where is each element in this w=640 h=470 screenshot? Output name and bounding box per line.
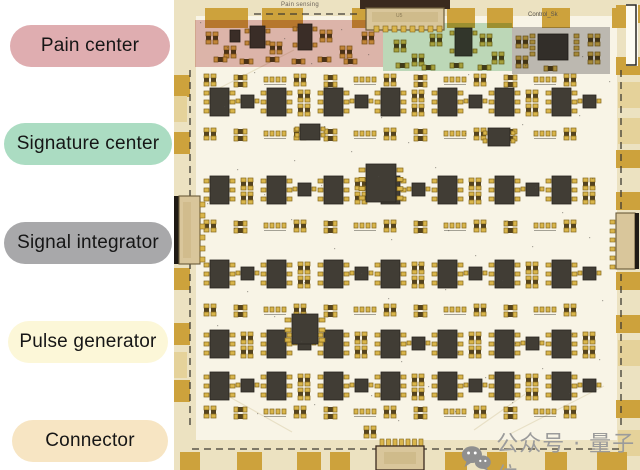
smd-chip xyxy=(552,372,571,400)
smd-chip xyxy=(241,379,254,392)
silkscreen-pain-sensing-label: Pain sensing xyxy=(281,2,319,8)
smd-chip xyxy=(292,314,318,344)
top-connector xyxy=(360,0,450,32)
smd-chip xyxy=(469,95,482,108)
edge-tab xyxy=(616,150,640,168)
smd-chip xyxy=(355,379,368,392)
edge-tab xyxy=(616,192,640,210)
smd-chip xyxy=(267,330,286,358)
smd-chip xyxy=(324,260,343,288)
smd-chip xyxy=(583,95,596,108)
smd-chip xyxy=(210,260,229,288)
legend-label: Pain center xyxy=(41,35,139,57)
legend-label: Signature center xyxy=(17,133,160,155)
smd-chip xyxy=(552,88,571,116)
smd-chip xyxy=(488,128,510,146)
edge-tab xyxy=(174,96,187,122)
smd-chip xyxy=(324,176,343,204)
legend-label: Pulse generator xyxy=(19,331,156,353)
smd-chip xyxy=(298,183,311,196)
silkscreen-control-label: Control_Sk xyxy=(528,12,558,18)
edge-tab xyxy=(174,268,190,290)
edge-tab xyxy=(174,132,190,154)
legend-label: Signal integrator xyxy=(17,232,159,254)
smd-chip xyxy=(495,176,514,204)
edge-tab xyxy=(616,315,640,333)
smd-chip xyxy=(583,267,596,280)
smd-chip xyxy=(438,176,457,204)
edge-tab xyxy=(180,452,200,470)
smd-chip xyxy=(241,267,254,280)
legend-pill-pulse-generator: Pulse generator xyxy=(8,321,168,363)
pcb-photo xyxy=(174,0,640,470)
smd-chip xyxy=(438,260,457,288)
smd-chip xyxy=(267,176,286,204)
smd-chip xyxy=(469,379,482,392)
smd-chip xyxy=(267,88,286,116)
smd-chip xyxy=(324,88,343,116)
wechat-icon xyxy=(461,443,491,470)
smd-chip xyxy=(267,372,286,400)
smd-chip xyxy=(495,372,514,400)
edge-tab xyxy=(237,452,262,470)
smd-chip xyxy=(526,337,539,350)
smd-chip xyxy=(366,164,396,202)
smd-chip xyxy=(381,330,400,358)
smd-chip xyxy=(381,88,400,116)
legend-pill-connector: Connector xyxy=(12,420,168,462)
smd-chip xyxy=(324,330,343,358)
annotated-pcb-figure: Pain center Signature center Signal inte… xyxy=(0,0,640,470)
smd-chip xyxy=(210,88,229,116)
smd-chip xyxy=(438,372,457,400)
smd-chip xyxy=(552,176,571,204)
edge-tab xyxy=(330,452,350,470)
legend-pill-signal-integrator: Signal integrator xyxy=(4,222,172,264)
pain-center-region xyxy=(195,20,383,67)
watermark: 公众号 · 量子位 xyxy=(461,426,640,470)
smd-chip xyxy=(412,183,425,196)
legend-pill-signature-center: Signature center xyxy=(4,123,172,165)
smd-chip xyxy=(267,260,286,288)
smd-chip xyxy=(300,124,320,140)
smd-chip xyxy=(324,372,343,400)
edge-tab xyxy=(542,8,570,28)
legend-pill-pain-center: Pain center xyxy=(10,25,170,67)
edge-tab xyxy=(616,272,640,290)
pcb-board xyxy=(174,0,640,470)
smd-chip xyxy=(438,88,457,116)
left-connector xyxy=(174,196,205,264)
edge-tab xyxy=(297,452,321,470)
bottom-connector xyxy=(376,439,424,470)
smd-chip xyxy=(241,95,254,108)
smd-chip xyxy=(438,330,457,358)
smd-chip xyxy=(210,330,229,358)
smd-chip xyxy=(381,260,400,288)
edge-tab xyxy=(616,400,640,418)
smd-chip xyxy=(469,267,482,280)
smd-chip xyxy=(495,88,514,116)
smd-chip xyxy=(381,372,400,400)
smd-chip xyxy=(552,330,571,358)
smd-chip xyxy=(210,372,229,400)
edge-tab xyxy=(174,380,190,402)
smd-chip xyxy=(210,176,229,204)
signal-integrator-region xyxy=(512,27,610,74)
legend-label: Connector xyxy=(45,430,134,452)
smd-chip xyxy=(526,183,539,196)
smd-chip xyxy=(412,337,425,350)
silkscreen-u5-label: U5 xyxy=(396,14,402,19)
smd-chip xyxy=(495,330,514,358)
edge-tab xyxy=(174,352,187,378)
smd-chip xyxy=(583,379,596,392)
smd-chip xyxy=(552,260,571,288)
edge-tab xyxy=(174,75,190,97)
smd-chip xyxy=(495,260,514,288)
edge-tab xyxy=(174,323,190,345)
smd-chip xyxy=(355,95,368,108)
watermark-text: 公众号 · 量子位 xyxy=(496,426,640,470)
